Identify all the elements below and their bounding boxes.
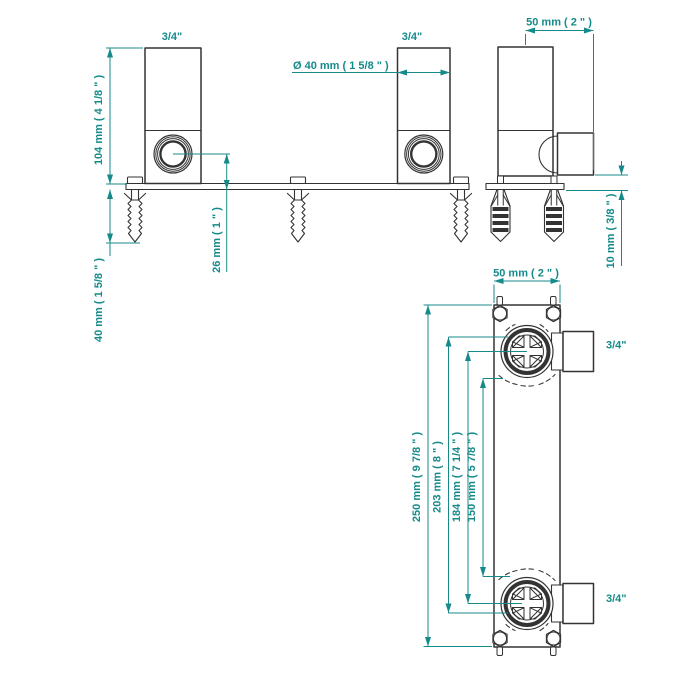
outlet-side [558,133,594,175]
dim-overall-length-label: 250 mm ( 9 7/8 " ) [411,432,423,523]
dim-diameter-label: Ø 40 mm ( 1 5/8 " ) [293,60,389,72]
mounting-plate-front [126,184,469,190]
wall-plug-side [545,190,564,242]
dim-anchor-length-label: 40 mm ( 1 5/8 " ) [93,258,105,342]
dim-height-label: 104 mm ( 4 1/8 " ) [93,75,105,166]
hex-screw [546,305,560,321]
body-side [498,47,553,176]
mounting-plate-side [486,184,564,190]
wall-plug-side [491,190,510,242]
left-fitting-front [145,48,201,184]
right-fitting-front [398,48,451,184]
hex-screw [493,630,507,646]
fixture-installation-drawing: 3/4" 3/4" Ø 40 mm ( 1 5/8 " ) 104 mm ( 4… [0,0,700,700]
dim-inner-length-label: 150 mm ( 5 7/8 " ) [466,432,478,523]
hex-screw [493,305,507,321]
dim-center-distance-label: 184 mm ( 7 1/4 " ) [451,432,463,523]
dim-right-pipe-label: 3/4" [402,31,423,43]
dim-outer-length-label: 203 mm ( 8 " ) [432,441,444,513]
dim-wall-gap-label: 10 mm ( 3/8 " ) [605,193,617,268]
background [0,0,700,700]
dim-offset-label: 26 mm ( 1 " ) [211,207,223,273]
dim-bottom-outlet-label: 3/4" [606,593,627,605]
dim-depth-label: 50 mm ( 2 " ) [526,17,592,29]
dim-plan-width-label: 50 mm ( 2 " ) [493,268,559,280]
hex-screw [546,630,560,646]
dim-left-pipe-label: 3/4" [162,31,183,43]
technical-drawing-page: 3/4" 3/4" Ø 40 mm ( 1 5/8 " ) 104 mm ( 4… [0,0,700,700]
dim-top-outlet-label: 3/4" [606,340,627,352]
